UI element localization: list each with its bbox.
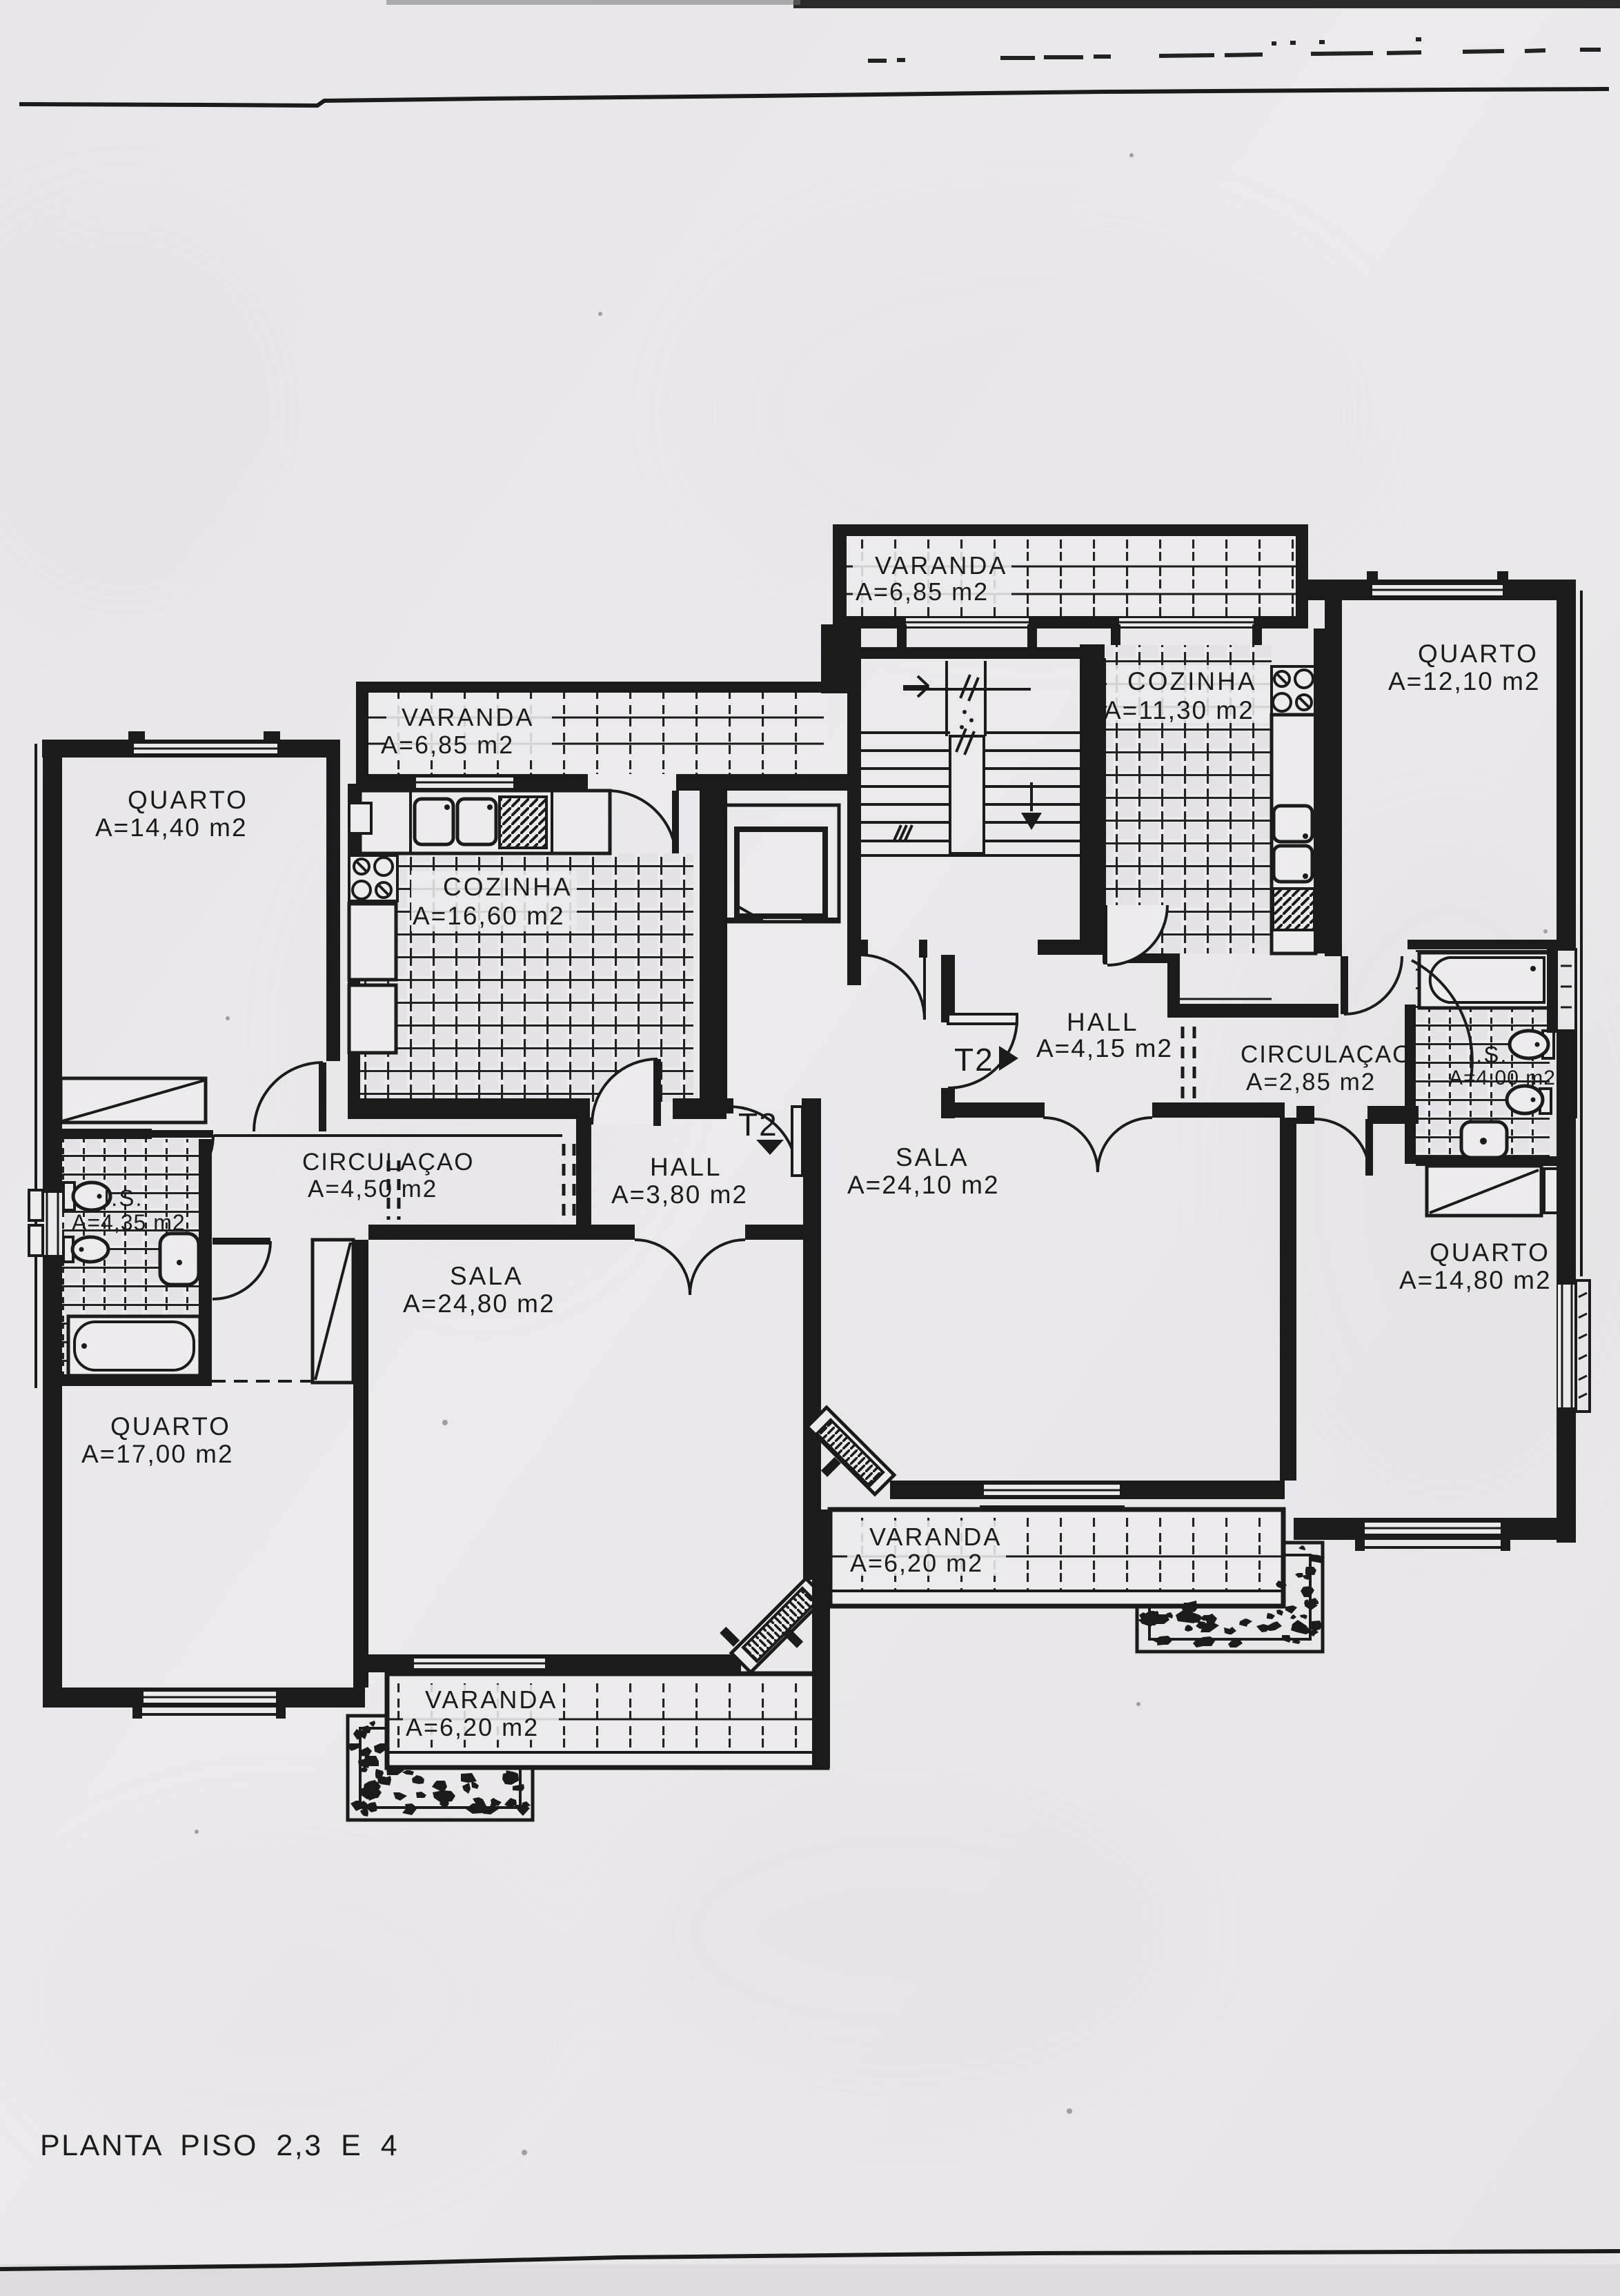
svg-text:A=3,80 m2: A=3,80 m2 (611, 1180, 748, 1209)
svg-text:A=6,20 m2: A=6,20 m2 (406, 1713, 539, 1741)
svg-text:QUARTO: QUARTO (128, 786, 248, 814)
svg-text:A=11,30 m2: A=11,30 m2 (1104, 696, 1254, 724)
svg-text:A=4,50 m2: A=4,50 m2 (308, 1176, 437, 1203)
svg-text:VARANDA: VARANDA (875, 551, 1007, 580)
svg-text:HALL: HALL (650, 1153, 722, 1181)
svg-text:VARANDA: VARANDA (869, 1523, 1002, 1551)
svg-text:HALL: HALL (1067, 1008, 1139, 1036)
svg-text:SALA: SALA (896, 1143, 969, 1171)
svg-text:A=6,20 m2: A=6,20 m2 (850, 1549, 983, 1577)
svg-text:A=6,85 m2: A=6,85 m2 (381, 731, 514, 759)
svg-text:I.S.: I.S. (103, 1185, 144, 1211)
svg-text:PLANTA PISO 2,3 E 4: PLANTA PISO 2,3 E 4 (40, 2129, 399, 2162)
svg-text:VARANDA: VARANDA (402, 703, 534, 731)
svg-text:I.S.: I.S. (1468, 1042, 1508, 1067)
svg-text:A=4,00 m2: A=4,00 m2 (1449, 1067, 1556, 1089)
svg-text:COZINHA: COZINHA (1127, 667, 1257, 695)
svg-text:T2: T2 (738, 1107, 778, 1142)
svg-text:A=6,85 m2: A=6,85 m2 (856, 577, 989, 606)
svg-text:A=14,40 m2: A=14,40 m2 (95, 813, 248, 842)
svg-text:A=4,15 m2: A=4,15 m2 (1036, 1034, 1173, 1062)
svg-text:A=17,00 m2: A=17,00 m2 (81, 1440, 234, 1468)
svg-text:A=14,80 m2: A=14,80 m2 (1399, 1266, 1552, 1294)
svg-text:CIRCULAÇAO: CIRCULAÇAO (302, 1149, 474, 1176)
svg-text:A=2,85 m2: A=2,85 m2 (1246, 1069, 1376, 1096)
svg-text:QUARTO: QUARTO (1418, 640, 1539, 668)
svg-text:T2: T2 (954, 1042, 994, 1078)
svg-text:A=24,10 m2: A=24,10 m2 (847, 1171, 1000, 1199)
svg-text:A=24,80 m2: A=24,80 m2 (403, 1289, 555, 1318)
svg-text:CIRCULAÇAO: CIRCULAÇAO (1241, 1041, 1412, 1068)
svg-text:A=16,60 m2: A=16,60 m2 (413, 902, 565, 930)
svg-text:A=4,35 m2: A=4,35 m2 (72, 1210, 186, 1235)
svg-text:QUARTO: QUARTO (110, 1412, 231, 1441)
svg-text:COZINHA: COZINHA (443, 873, 573, 901)
svg-text:QUARTO: QUARTO (1430, 1238, 1550, 1267)
svg-text:SALA: SALA (450, 1262, 524, 1290)
svg-text:VARANDA: VARANDA (425, 1685, 557, 1714)
svg-text:A=12,10 m2: A=12,10 m2 (1388, 667, 1541, 695)
